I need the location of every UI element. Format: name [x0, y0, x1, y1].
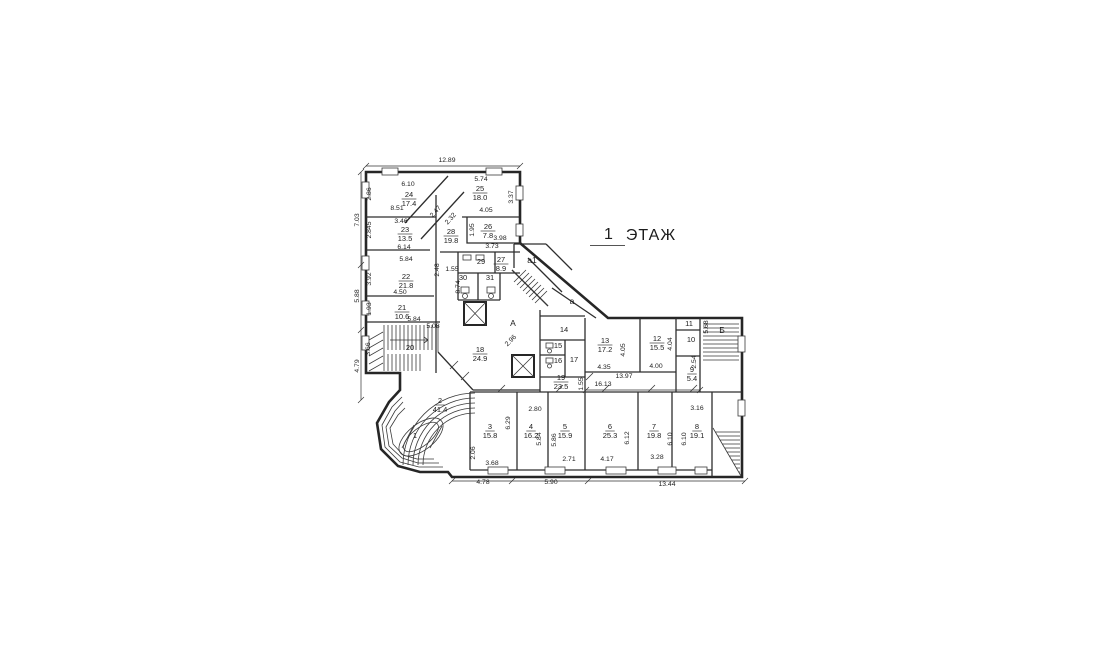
floor-word: ЭТАЖ: [626, 227, 676, 246]
room-number: 14: [560, 325, 568, 334]
dimension-label: 1.55: [445, 266, 458, 273]
room-number: 16: [554, 356, 562, 365]
room-number: 12: [653, 334, 661, 343]
page: { "title": { "floor_number": "1", "floor…: [0, 0, 1120, 658]
dimension-label: 6.10: [667, 432, 674, 445]
room-number: 22: [402, 272, 410, 281]
dimension-label: 8.51: [390, 205, 403, 212]
dimension-label: 5.84: [407, 316, 420, 323]
dimension-label: 2.06: [470, 446, 477, 459]
room-area: 13.5: [398, 234, 413, 243]
room-number: 15: [554, 341, 562, 350]
dimension-label: 3.66: [365, 342, 372, 355]
room-area: 19.8: [444, 236, 459, 245]
dimension-label: 1.93: [366, 302, 373, 315]
dimension-label: 6.10: [401, 181, 414, 188]
dimension-label: 4.50: [393, 289, 406, 296]
room-number: 17: [570, 355, 578, 364]
dimension-label: 5.84: [536, 432, 543, 445]
axis-letter: А: [510, 318, 516, 328]
room-labels: 1241.4315.8416.2515.9625.3719.8819.195.4…: [395, 184, 705, 440]
room-number: 10: [687, 335, 695, 344]
room-area: 18.0: [473, 193, 488, 202]
room-area: 8.9: [496, 264, 506, 273]
dimension-label: 4.04: [667, 337, 674, 350]
dimension-label: 3.73: [485, 243, 498, 250]
dimension-label: 1.55: [578, 377, 585, 390]
room-area: 17.4: [402, 199, 417, 208]
dimension-label: 16.13: [594, 381, 611, 388]
stair-room20: [369, 325, 438, 371]
dimension-label: 3.28: [650, 454, 663, 461]
dimension-label: 5.90: [544, 479, 557, 486]
room-number: 13: [601, 336, 609, 345]
room-area: 5.4: [687, 374, 697, 383]
room-area: 15.9: [558, 431, 573, 440]
dimension-label: 3.37: [508, 190, 515, 203]
dimension-label: 7.03: [354, 213, 361, 226]
room-area: 19.8: [647, 431, 662, 440]
dimension-label: 4.78: [476, 479, 489, 486]
room-area: 24.9: [473, 354, 488, 363]
dimension-label: 2.96: [504, 334, 518, 348]
dimension-label: 3.16: [690, 405, 703, 412]
room-number: 18: [476, 345, 484, 354]
dimension-label: 13.44: [658, 481, 675, 488]
dimension-label: 3.92: [366, 272, 373, 285]
floor-number: 1: [590, 226, 625, 246]
room-number: 6: [608, 422, 612, 431]
dimension-label: 2.86: [366, 187, 373, 200]
dimension-label: 5.84: [399, 256, 412, 263]
room-number: 29: [477, 257, 485, 266]
elevators: [464, 302, 534, 377]
dimension-label: 3.46: [394, 218, 407, 225]
dimension-label: 4.35: [597, 364, 610, 371]
dimension-label: 3.98: [493, 235, 506, 242]
dimension-label: 4.79: [354, 359, 361, 372]
dimension-label: 1.95: [469, 223, 476, 236]
room-number: 7: [652, 422, 656, 431]
dimension-label: 4.05: [479, 207, 492, 214]
room-area: 15.8: [483, 431, 498, 440]
stair-connector: [512, 270, 548, 306]
room-number: 31: [486, 273, 494, 282]
stair-right-triangle: [713, 428, 741, 476]
dimension-label: 3.68: [485, 460, 498, 467]
dimension-label: 2.71: [562, 456, 575, 463]
room-area: 7.8: [483, 231, 493, 240]
dimension-label: 4.00: [649, 363, 662, 370]
floor-title: 1 ЭТАЖ: [590, 226, 676, 246]
room-area: 41.4: [433, 405, 448, 414]
room-number: 4: [529, 422, 533, 431]
dimension-label: 4.17: [600, 456, 613, 463]
room-number: 8: [695, 422, 699, 431]
dimension-label: 2.80: [528, 406, 541, 413]
dimension-label: 5.68: [703, 320, 710, 333]
dimension-label: 2.48: [434, 263, 441, 276]
room-number: 23: [401, 225, 409, 234]
dimension-label: 5.08: [426, 323, 439, 330]
room-number: 27: [497, 255, 505, 264]
dimension-label: 13.97: [615, 373, 632, 380]
floor-plan: 1241.4315.8416.2515.9625.3719.8819.195.4…: [0, 0, 1120, 658]
dimension-label: 2.54: [691, 355, 698, 368]
room-number: 21: [398, 303, 406, 312]
axis-letter: а: [570, 296, 575, 306]
room-number: 20: [406, 343, 414, 352]
room-number: 1: [413, 431, 417, 440]
room-number: 2: [438, 396, 442, 405]
dimension-label: 5.74: [474, 176, 487, 183]
room-number: 11: [685, 319, 693, 328]
dimension-label: 6.12: [624, 431, 631, 444]
axis-letter: Б: [719, 325, 725, 335]
room-area: 23.5: [554, 382, 569, 391]
room-area: 19.1: [690, 431, 705, 440]
dimension-label: 4.05: [620, 343, 627, 356]
oval-vestibule: [393, 411, 450, 464]
room-number: 5: [563, 422, 567, 431]
dimension-label: 8.74: [455, 280, 462, 293]
room-area: 17.2: [598, 345, 613, 354]
room-number: 19: [557, 373, 565, 382]
room-number: 26: [484, 222, 492, 231]
axis-letter: а1: [527, 255, 537, 265]
dimension-label: 5.86: [551, 433, 558, 446]
room-area: 15.5: [650, 343, 665, 352]
room-number: 24: [405, 190, 413, 199]
room-number: 28: [447, 227, 455, 236]
dimension-label: 12.89: [438, 157, 455, 164]
dimension-label: 6.14: [397, 244, 410, 251]
room-area: 25.3: [603, 431, 618, 440]
dimension-label: 2.845: [366, 221, 373, 238]
dimension-label: 6.10: [681, 432, 688, 445]
room-number: 25: [476, 184, 484, 193]
room-number: 3: [488, 422, 492, 431]
axis-letter-labels: Ааа1Б: [510, 255, 725, 335]
dimension-label: 5.88: [354, 289, 361, 302]
dimension-label: 2.32: [444, 212, 458, 227]
dimension-label: 6.29: [505, 416, 512, 429]
